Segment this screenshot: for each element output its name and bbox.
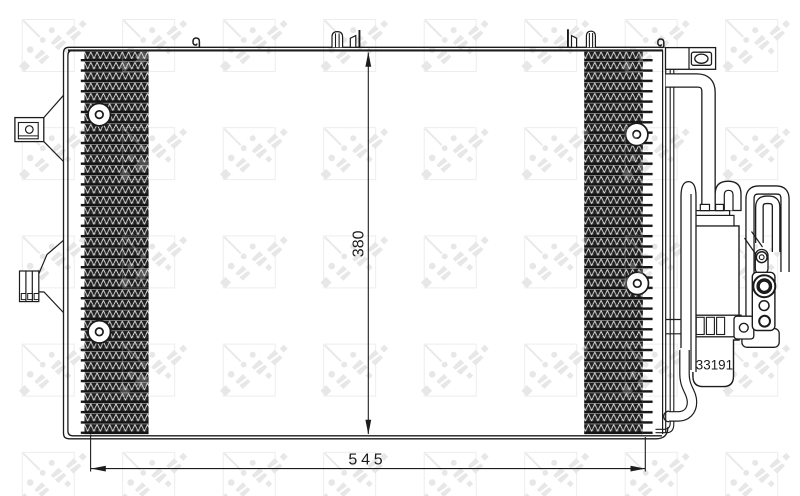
svg-text:33191: 33191 [696, 358, 733, 373]
svg-text:380: 380 [351, 230, 368, 257]
svg-text:545: 545 [348, 451, 386, 468]
